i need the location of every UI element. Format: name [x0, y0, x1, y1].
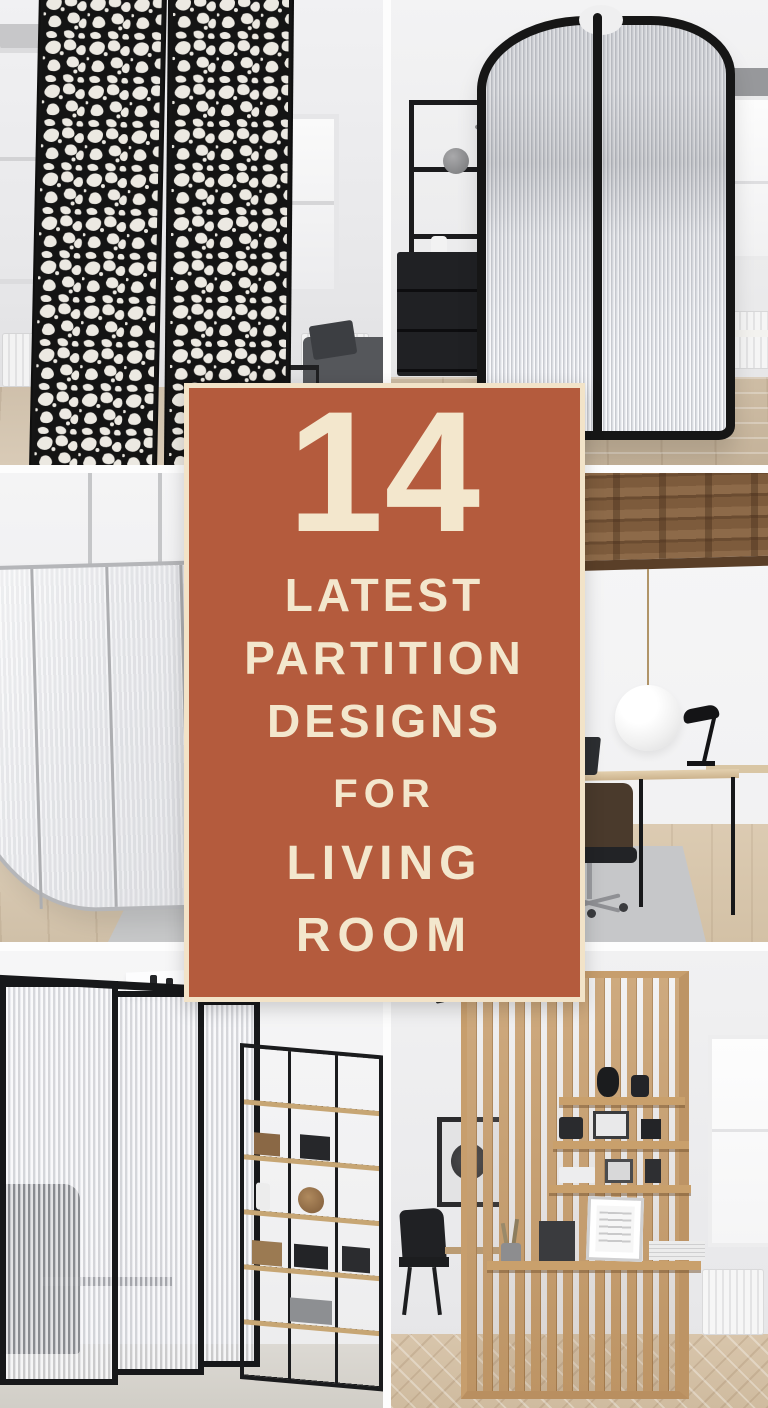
title-line-partition: PARTITION — [244, 635, 524, 681]
shelf-item-box — [294, 1244, 328, 1270]
reeded-glass-panel — [0, 981, 118, 1385]
lasercut-panel-left — [31, 0, 165, 465]
radiator — [702, 1269, 764, 1335]
shelf-item-books — [300, 1134, 330, 1161]
book-stack — [539, 1221, 575, 1261]
title-card: 14 LATEST PARTITION DESIGNS FOR LIVING R… — [184, 383, 585, 1002]
sphere-vase — [443, 148, 469, 174]
window — [708, 1035, 768, 1247]
fluted-glass-screen — [477, 16, 735, 440]
black-grid-shelving — [240, 1043, 383, 1392]
title-line-for: FOR — [333, 774, 435, 814]
shelf-item-printer — [290, 1297, 332, 1325]
sofa-cushion — [309, 320, 358, 360]
ceiling-mount-pole — [158, 473, 162, 575]
shelf-item-vase — [256, 1182, 270, 1210]
camera-decor — [559, 1117, 583, 1139]
pendant-cord — [647, 569, 649, 687]
chair-gas-lift — [587, 863, 592, 899]
shelf-item-box — [254, 1132, 280, 1156]
ceiling-mount-pole — [88, 473, 92, 569]
photo-frame — [593, 1111, 629, 1139]
black-vase — [597, 1067, 619, 1097]
title-line-latest: LATEST — [285, 572, 484, 618]
display-shelf — [559, 1097, 685, 1105]
white-cups — [559, 1167, 595, 1183]
display-shelf — [549, 1185, 691, 1193]
title-line-living: LIVING — [286, 840, 482, 888]
pin-collage: 14 LATEST PARTITION DESIGNS FOR LIVING R… — [0, 0, 768, 1408]
desk-leg — [731, 777, 735, 915]
photo-wood-slat-partition — [391, 951, 768, 1408]
magazine-stack — [649, 1241, 705, 1260]
photo-frame — [605, 1159, 633, 1183]
wood-shelf — [244, 1099, 379, 1116]
dining-chair-back — [399, 1208, 447, 1265]
title-number: 14 — [288, 396, 481, 548]
book — [645, 1159, 661, 1183]
reeded-glass-panel — [112, 991, 204, 1375]
desk-leg — [639, 779, 643, 907]
globe-pendant-light — [615, 685, 681, 751]
title-line-designs: DESIGNS — [267, 698, 502, 744]
leaning-poster-frame — [586, 1196, 644, 1262]
display-shelf — [487, 1261, 701, 1270]
chair-wheel — [587, 909, 596, 918]
title-line-room: ROOM — [296, 912, 473, 960]
shelf-item-sculpture — [298, 1186, 324, 1214]
grey-vase — [501, 1243, 521, 1263]
black-jar — [631, 1075, 649, 1097]
chair-wheel — [619, 903, 628, 912]
photo-reeded-glass-grid-shelving — [0, 951, 383, 1408]
screen-mullion — [593, 13, 602, 431]
display-shelf — [553, 1141, 689, 1149]
black-box — [641, 1119, 661, 1139]
shelf-item-crate — [252, 1240, 282, 1267]
window-right — [285, 114, 339, 294]
shelf-item-box — [342, 1246, 370, 1273]
dining-chair-seat — [399, 1257, 449, 1267]
